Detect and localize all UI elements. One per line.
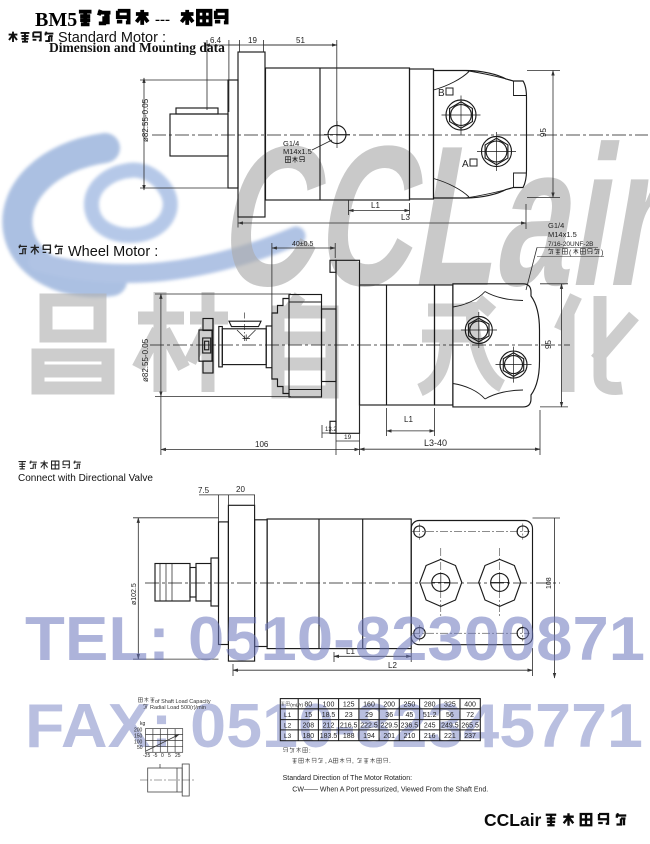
svg-text:325: 325 xyxy=(444,702,456,709)
svg-text:106: 106 xyxy=(255,440,269,449)
svg-text:L1: L1 xyxy=(371,201,380,210)
svg-text:G1/4: G1/4 xyxy=(548,221,564,230)
svg-text:95: 95 xyxy=(544,340,553,349)
svg-text:5: 5 xyxy=(168,753,171,759)
svg-text:---: --- xyxy=(155,12,170,28)
svg-text:A: A xyxy=(462,159,469,170)
svg-text:Dimension and Mounting data: Dimension and Mounting data xyxy=(49,40,225,55)
svg-text:Wheel Motor :: Wheel Motor : xyxy=(68,244,158,260)
svg-text:222.5: 222.5 xyxy=(360,723,378,730)
svg-text:ø102.5: ø102.5 xyxy=(131,583,138,605)
svg-text:L3: L3 xyxy=(401,213,410,222)
svg-text:,: , xyxy=(352,758,354,765)
svg-text:0: 0 xyxy=(161,753,164,759)
svg-text:201: 201 xyxy=(383,733,395,740)
svg-text:400: 400 xyxy=(464,702,476,709)
svg-text:40±0.5: 40±0.5 xyxy=(292,241,313,248)
svg-text:72: 72 xyxy=(466,712,474,719)
svg-text:210: 210 xyxy=(404,733,416,740)
svg-text:BM5: BM5 xyxy=(35,9,77,31)
svg-text:Standard Direction of The Moto: Standard Direction of The Motor Rotation… xyxy=(283,775,412,782)
svg-text:229.5: 229.5 xyxy=(380,723,398,730)
svg-text:100: 100 xyxy=(323,702,335,709)
svg-text:160: 160 xyxy=(363,702,375,709)
svg-text:): ) xyxy=(601,250,603,257)
svg-text:180: 180 xyxy=(302,733,314,740)
svg-text:M14x1.5: M14x1.5 xyxy=(283,147,312,156)
svg-text:Connect with Directional Valve: Connect with Directional Valve xyxy=(18,473,153,484)
svg-text:, A: , A xyxy=(325,758,333,765)
svg-text:250: 250 xyxy=(404,702,416,709)
svg-text:-25: -25 xyxy=(143,753,150,759)
svg-text:216: 216 xyxy=(424,733,436,740)
svg-text:50: 50 xyxy=(137,745,143,751)
svg-text:237: 237 xyxy=(464,733,476,740)
svg-text:236.5: 236.5 xyxy=(401,723,419,730)
svg-text:kg: kg xyxy=(140,721,146,727)
svg-text:183.5: 183.5 xyxy=(320,733,338,740)
svg-text:L1: L1 xyxy=(404,415,413,424)
svg-text:125: 125 xyxy=(343,702,355,709)
svg-text:194: 194 xyxy=(363,733,375,740)
svg-text:-5: -5 xyxy=(153,753,158,759)
svg-text:ø82.55-0.05: ø82.55-0.05 xyxy=(141,98,150,142)
svg-text:25: 25 xyxy=(175,753,181,759)
svg-text:221: 221 xyxy=(444,733,456,740)
svg-text:B: B xyxy=(438,88,445,99)
svg-text:188: 188 xyxy=(343,733,355,740)
svg-text:L3: L3 xyxy=(284,733,292,740)
svg-text:ø82.55-0.05: ø82.55-0.05 xyxy=(141,338,150,382)
svg-text:CCLair: CCLair xyxy=(484,810,542,830)
svg-text:7.5: 7.5 xyxy=(198,486,210,495)
svg-text:208: 208 xyxy=(302,723,314,730)
svg-text:20: 20 xyxy=(236,485,245,494)
svg-text:45: 45 xyxy=(406,712,414,719)
svg-text:L1: L1 xyxy=(284,712,292,719)
svg-text:265.5: 265.5 xyxy=(461,723,479,730)
svg-text:200: 200 xyxy=(383,702,395,709)
svg-text:280: 280 xyxy=(424,702,436,709)
svg-text:95: 95 xyxy=(539,128,548,137)
svg-text:L2: L2 xyxy=(284,723,292,730)
svg-text:80: 80 xyxy=(304,702,312,709)
svg-text:51: 51 xyxy=(296,36,305,45)
svg-text:18.5: 18.5 xyxy=(322,712,336,719)
svg-text:212: 212 xyxy=(323,723,335,730)
svg-text:TEL: 0510-82300871: TEL: 0510-82300871 xyxy=(25,605,645,674)
svg-text:245: 245 xyxy=(424,723,436,730)
svg-text:56: 56 xyxy=(446,712,454,719)
svg-text:.: . xyxy=(389,758,391,765)
svg-text:CW—— When A Port pressurized,: CW—— When A Port pressurized, Viewed Fro… xyxy=(292,787,488,794)
svg-text:19: 19 xyxy=(248,36,257,45)
svg-text:15: 15 xyxy=(304,712,312,719)
svg-text:29: 29 xyxy=(365,712,373,719)
svg-text:Radial Load 500(r)/min: Radial Load 500(r)/min xyxy=(150,705,206,711)
svg-text:13.2: 13.2 xyxy=(325,427,337,433)
svg-text:108: 108 xyxy=(546,577,553,589)
svg-text:7/16-20UNF-2B: 7/16-20UNF-2B xyxy=(548,241,594,248)
svg-text:36: 36 xyxy=(385,712,393,719)
svg-text:216.5: 216.5 xyxy=(340,723,358,730)
svg-text:M14x1.5: M14x1.5 xyxy=(548,230,577,239)
svg-text:51.2: 51.2 xyxy=(423,712,437,719)
svg-text:23: 23 xyxy=(345,712,353,719)
svg-text:L3-40: L3-40 xyxy=(424,438,447,448)
svg-text:249.5: 249.5 xyxy=(441,723,459,730)
svg-text:(mL/r): (mL/r) xyxy=(290,702,303,708)
svg-text:19: 19 xyxy=(344,434,352,441)
